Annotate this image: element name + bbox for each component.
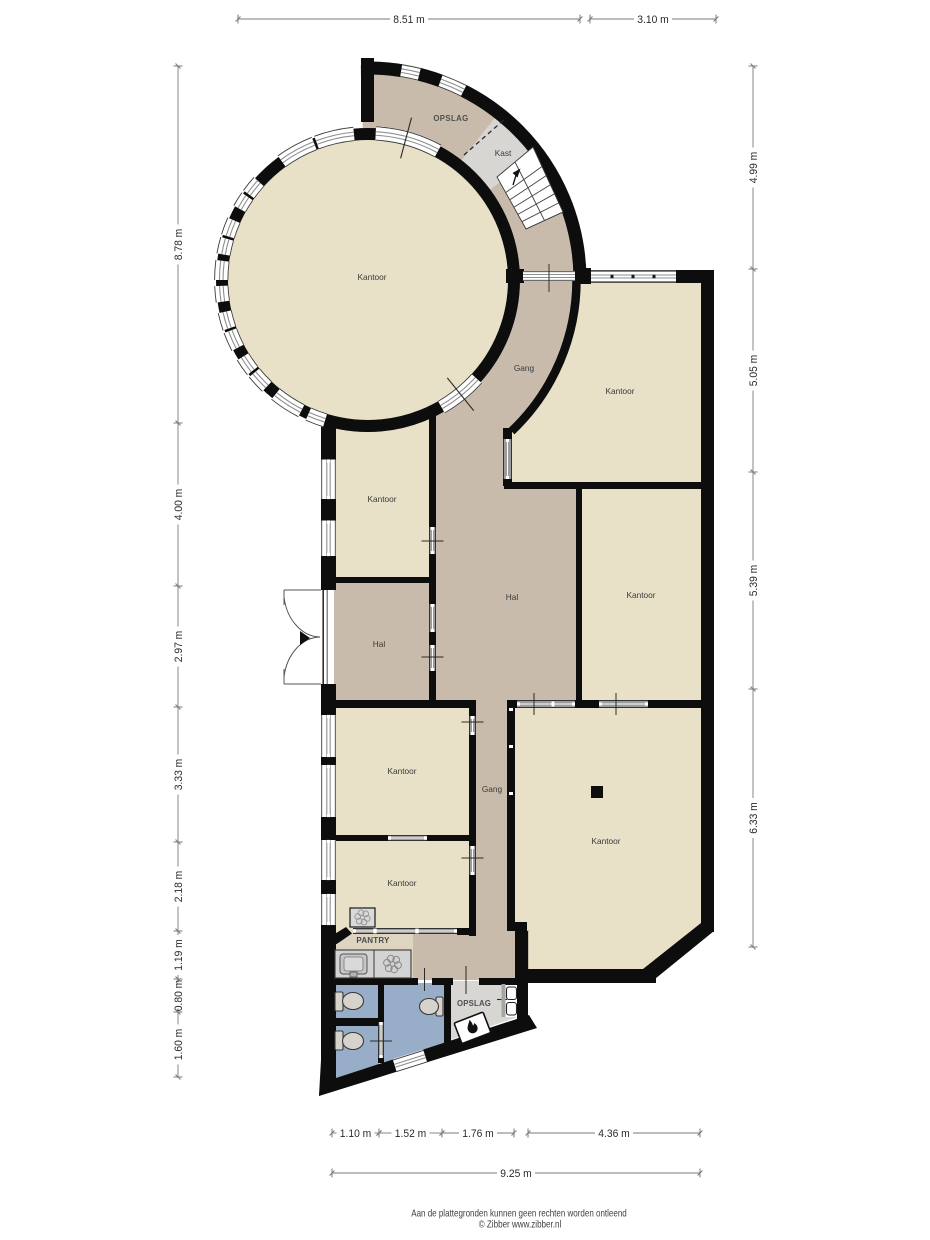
svg-text:1.76 m: 1.76 m [462,1128,494,1140]
svg-text:OPSLAG: OPSLAG [433,114,468,123]
svg-text:1.60 m: 1.60 m [173,1029,185,1061]
svg-text:2.18 m: 2.18 m [173,871,185,903]
svg-text:8.51 m: 8.51 m [393,14,425,26]
svg-text:4.99 m: 4.99 m [748,152,760,184]
svg-text:Aan de plattegronden kunnen ge: Aan de plattegronden kunnen geen rechten… [411,1209,627,1220]
svg-text:© Zibber www.zibber.nl: © Zibber www.zibber.nl [479,1220,562,1231]
svg-text:0.80 m: 0.80 m [173,980,185,1012]
svg-text:1.10 m: 1.10 m [340,1128,372,1140]
svg-text:9.25 m: 9.25 m [500,1168,532,1180]
svg-text:Kantoor: Kantoor [626,590,655,600]
svg-text:Kantoor: Kantoor [387,766,416,776]
svg-text:Kast: Kast [495,148,512,158]
svg-text:4.36 m: 4.36 m [598,1128,630,1140]
svg-text:Kantoor: Kantoor [591,836,620,846]
svg-text:2.97 m: 2.97 m [173,631,185,663]
svg-text:Hal: Hal [506,592,519,602]
svg-text:5.05 m: 5.05 m [748,355,760,387]
svg-text:3.10 m: 3.10 m [637,14,669,26]
svg-text:Gang: Gang [482,784,503,794]
svg-text:PANTRY: PANTRY [356,936,390,945]
svg-text:Kantoor: Kantoor [605,386,634,396]
svg-text:8.78 m: 8.78 m [173,229,185,261]
svg-text:1.19 m: 1.19 m [173,939,185,971]
svg-text:OPSLAG: OPSLAG [457,999,491,1008]
svg-text:1.52 m: 1.52 m [395,1128,427,1140]
svg-text:Hal: Hal [373,639,386,649]
svg-text:Kantoor: Kantoor [367,494,396,504]
svg-text:6.33 m: 6.33 m [748,802,760,834]
svg-text:Gang: Gang [514,363,535,373]
svg-text:Kantoor: Kantoor [357,272,386,282]
svg-text:5.39 m: 5.39 m [748,565,760,597]
svg-text:Kantoor: Kantoor [387,878,416,888]
svg-text:4.00 m: 4.00 m [173,489,185,521]
svg-text:3.33 m: 3.33 m [173,759,185,791]
